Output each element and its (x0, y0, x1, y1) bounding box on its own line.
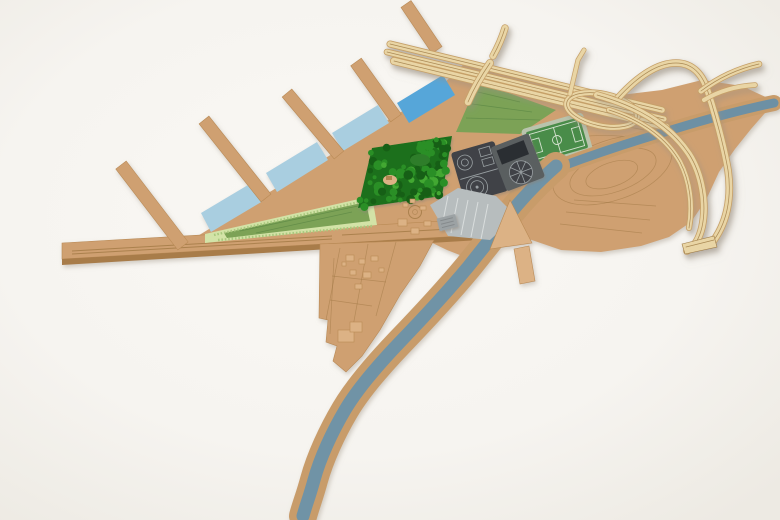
photo-stage (0, 0, 780, 520)
architectural-model-photo (0, 0, 780, 520)
